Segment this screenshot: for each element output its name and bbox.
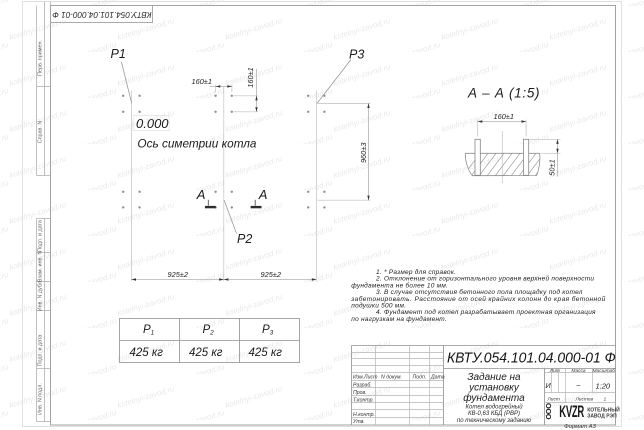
svg-text:Подп.: Подп. [413,375,427,381]
svg-text:160±1: 160±1 [246,67,255,88]
svg-text:Инв. N дубл.: Инв. N дубл. [38,280,44,312]
svg-text:425 кг: 425 кг [189,347,223,359]
svg-text:1. * Размер для справок.: 1. * Размер для справок. [376,268,456,276]
svg-text:–: – [575,380,581,389]
svg-text:925±2: 925±2 [168,270,189,279]
svg-text:Утв.: Утв. [353,419,365,425]
svg-text:160±1: 160±1 [494,112,515,121]
svg-text:Пров.: Пров. [353,390,367,396]
svg-text:Перв. примен.: Перв. примен. [38,40,44,76]
svg-text:А – А (1:5): А – А (1:5) [467,86,540,101]
svg-text:425 кг: 425 кг [130,347,164,359]
svg-text:1: 1 [604,397,607,403]
svg-text:KVZR: KVZR [559,403,584,421]
svg-text:Котел водогрейный: Котел водогрейный [465,404,523,411]
svg-text:Разраб.: Разраб. [353,383,372,389]
svg-text:КВТУ.054.101.04.000-01 Ф: КВТУ.054.101.04.000-01 Ф [447,350,616,367]
svg-text:160±1: 160±1 [192,77,213,86]
svg-text:И: И [545,381,551,390]
svg-text:Р1: Р1 [111,47,126,61]
svg-text:Задание на: Задание на [467,372,521,383]
svg-text:1:20: 1:20 [595,382,610,391]
svg-text:925±2: 925±2 [261,270,282,279]
svg-text:Изм.Лист: Изм.Лист [353,375,378,381]
svg-text:ЗАВОД РЭП: ЗАВОД РЭП [587,413,617,419]
svg-text:А: А [196,187,206,202]
svg-text:Масштаб: Масштаб [592,368,615,374]
svg-text:Формат А3: Формат А3 [564,424,596,430]
svg-text:КВ-0,63 КБД (РВР): КВ-0,63 КБД (РВР) [468,411,520,417]
svg-text:Взам. инв. N: Взам. инв. N [38,251,44,283]
svg-text:Н.контр.: Н.контр. [353,412,375,418]
svg-text:Т.контр.: Т.контр. [353,398,374,404]
svg-text:425 кг: 425 кг [249,347,283,359]
svg-text:Дата: Дата [430,375,445,381]
svg-text:установку: установку [468,382,520,393]
svg-text:Лит: Лит [549,368,560,374]
svg-text:Масса: Масса [571,368,586,374]
svg-text:Инв. N подл.: Инв. N подл. [38,383,44,415]
svg-text:ООО: ООО [544,403,553,420]
svg-text:Лист: Лист [547,396,560,402]
svg-text:А: А [258,187,268,202]
svg-text:N докум.: N докум. [381,375,402,381]
svg-text:Ось симетрии котла: Ось симетрии котла [137,137,257,151]
svg-text:Подп. и дата: Подп. и дата [38,220,44,252]
svg-text:Подп. и дата: Подп. и дата [38,335,44,367]
svg-text:3. В случае отсутствия бетонно: 3. В случае отсутствия бетонного пола пл… [376,288,583,296]
svg-text:Справ. N: Справ. N [38,121,44,144]
svg-text:фундамента: фундамента [463,392,525,404]
svg-text:по нагрузкам на фундамент.: по нагрузкам на фундамент. [351,315,447,323]
svg-text:Р3: Р3 [349,48,364,62]
svg-text:Р2: Р2 [237,232,252,246]
svg-text:50±1: 50±1 [548,159,557,175]
svg-text:КВТУ.054.101.04.000-01 Ф: КВТУ.054.101.04.000-01 Ф [52,10,152,19]
svg-text:по техническому заданию: по техническому заданию [457,418,532,424]
svg-text:960±3: 960±3 [359,142,368,163]
svg-text:0.000: 0.000 [136,116,169,131]
